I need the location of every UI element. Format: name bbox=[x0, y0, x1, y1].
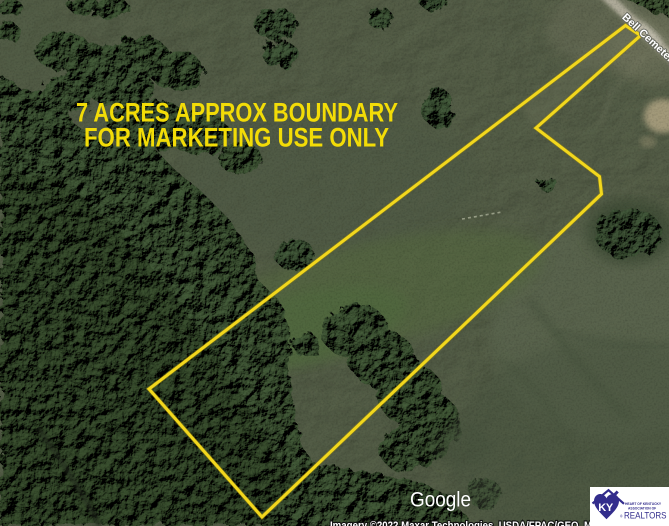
svg-text:®: ® bbox=[620, 515, 623, 519]
svg-text:KY: KY bbox=[598, 502, 614, 514]
svg-text:REALTORS: REALTORS bbox=[624, 511, 667, 521]
svg-text:FOR MARKETING USE ONLY: FOR MARKETING USE ONLY bbox=[84, 123, 389, 153]
svg-text:Imagery ©2022 Maxar Technologi: Imagery ©2022 Maxar Technologies, USDA/F… bbox=[330, 520, 592, 526]
svg-text:Google: Google bbox=[410, 489, 471, 512]
